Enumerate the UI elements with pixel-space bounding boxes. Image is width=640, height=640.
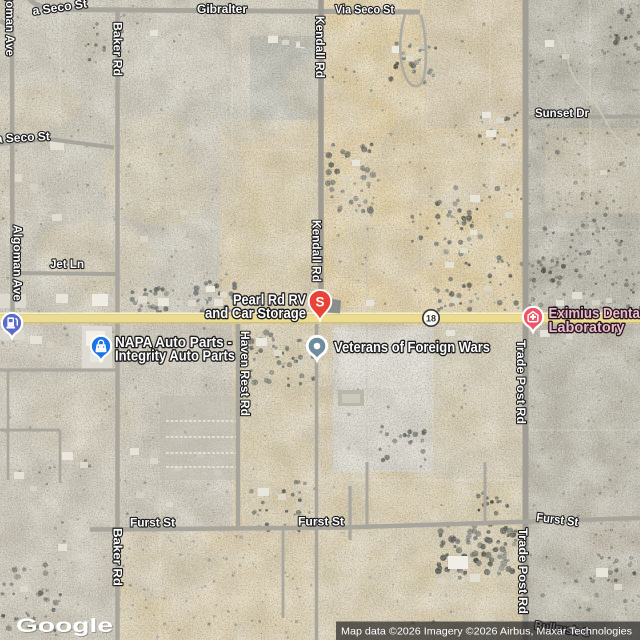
svg-text:Trade Post Rd: Trade Post Rd bbox=[516, 528, 530, 614]
svg-text:Laboratory: Laboratory bbox=[549, 319, 626, 336]
svg-text:Via Seco St: Via Seco St bbox=[335, 3, 394, 17]
svg-text:Baker Rd: Baker Rd bbox=[111, 528, 125, 586]
svg-text:Algoman Ave: Algoman Ave bbox=[3, 0, 17, 56]
svg-text:Map data ©2026 Imagery ©2026 A: Map data ©2026 Imagery ©2026 Airbus, Max… bbox=[341, 626, 632, 638]
svg-text:Google: Google bbox=[16, 615, 113, 637]
svg-text:and Car Storage: and Car Storage bbox=[205, 306, 306, 322]
svg-text:Integrity Auto Parts: Integrity Auto Parts bbox=[115, 349, 235, 365]
svg-text:Algoman Ave: Algoman Ave bbox=[11, 225, 25, 301]
svg-text:Furst St: Furst St bbox=[298, 515, 344, 529]
svg-text:Jet Ln: Jet Ln bbox=[50, 257, 84, 271]
svg-text:S: S bbox=[315, 295, 324, 310]
svg-text:Haven Rest Rd: Haven Rest Rd bbox=[238, 331, 252, 416]
svg-text:18: 18 bbox=[426, 313, 436, 323]
svg-text:Kendall Rd: Kendall Rd bbox=[313, 16, 327, 78]
svg-text:Veterans of Foreign Wars: Veterans of Foreign Wars bbox=[334, 339, 490, 356]
svg-text:Gibralter: Gibralter bbox=[197, 2, 247, 16]
svg-text:Furst St: Furst St bbox=[130, 516, 175, 530]
svg-text:Sunset Dr: Sunset Dr bbox=[535, 106, 589, 120]
svg-text:Kendall Rd: Kendall Rd bbox=[310, 220, 324, 282]
svg-text:Baker Rd: Baker Rd bbox=[111, 22, 125, 76]
svg-text:Trade Post Rd: Trade Post Rd bbox=[514, 340, 528, 424]
